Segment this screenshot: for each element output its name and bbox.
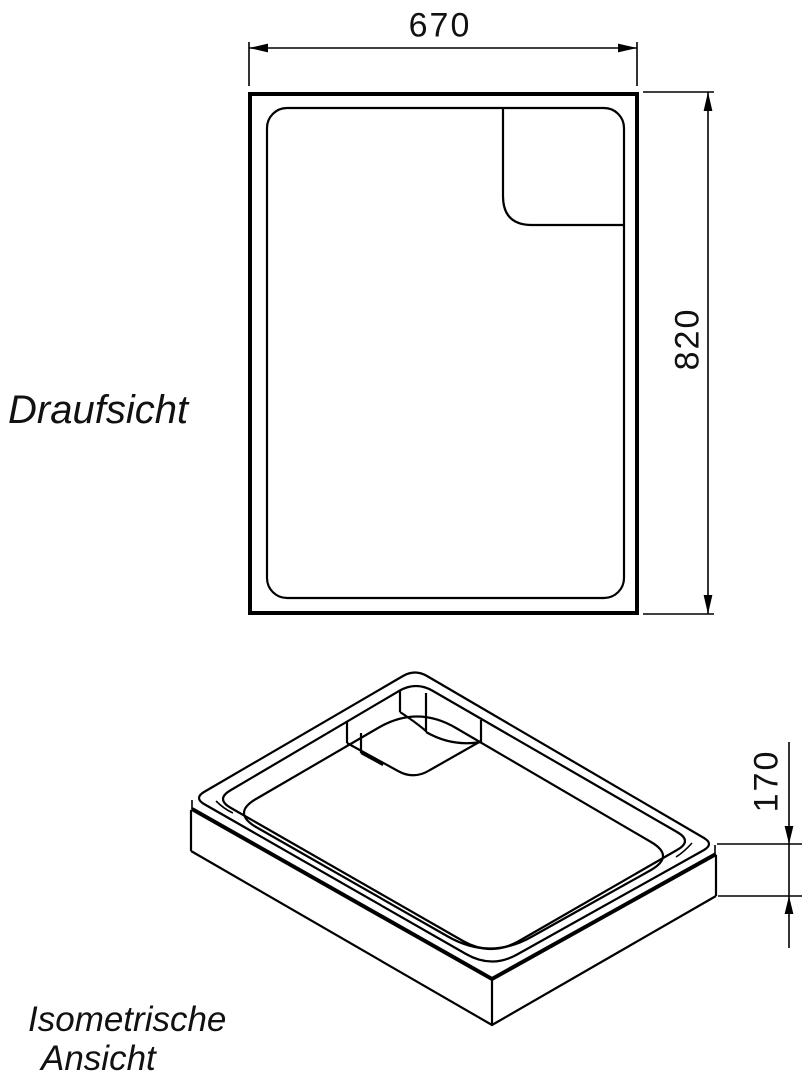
- iso-corner-pocket: [347, 690, 481, 775]
- cad-linework: [0, 0, 810, 1080]
- top-view-linework: [250, 94, 637, 613]
- top-view-inner-recess: [267, 108, 624, 598]
- iso-view-label-line2: Ansicht: [41, 1039, 156, 1079]
- dim-width-value: 670: [409, 7, 472, 46]
- dim-width-arrow-left: [249, 44, 268, 53]
- dim-height-value: 820: [669, 308, 708, 371]
- pocket-near-floor-path: [347, 741, 481, 775]
- dim-depth-arrow-bottom: [785, 896, 794, 914]
- dim-height-arrow-bottom: [704, 595, 713, 614]
- dim-width-arrow-right: [618, 44, 637, 53]
- iso-view-linework: [191, 673, 716, 1026]
- drawing-sheet: 670 820 170 Draufsicht Isometrische Ansi…: [0, 0, 810, 1080]
- dim-depth-arrow-top: [785, 826, 794, 844]
- pocket-near-wall-stub: [361, 753, 383, 765]
- top-view-corner-pocket: [503, 109, 623, 225]
- dim-depth-value: 170: [748, 750, 787, 813]
- iso-view-label-line1: Isometrische: [28, 1000, 226, 1040]
- dim-height-arrow-top: [704, 92, 713, 111]
- top-view-label: Draufsicht: [8, 388, 188, 433]
- iso-basin-floor-outline: [244, 717, 663, 949]
- dim-width-670: [249, 42, 637, 86]
- top-view-outer-rect: [250, 94, 637, 613]
- iso-tray-rim-outline: [199, 673, 709, 962]
- pocket-far-floor-arc: [400, 712, 426, 731]
